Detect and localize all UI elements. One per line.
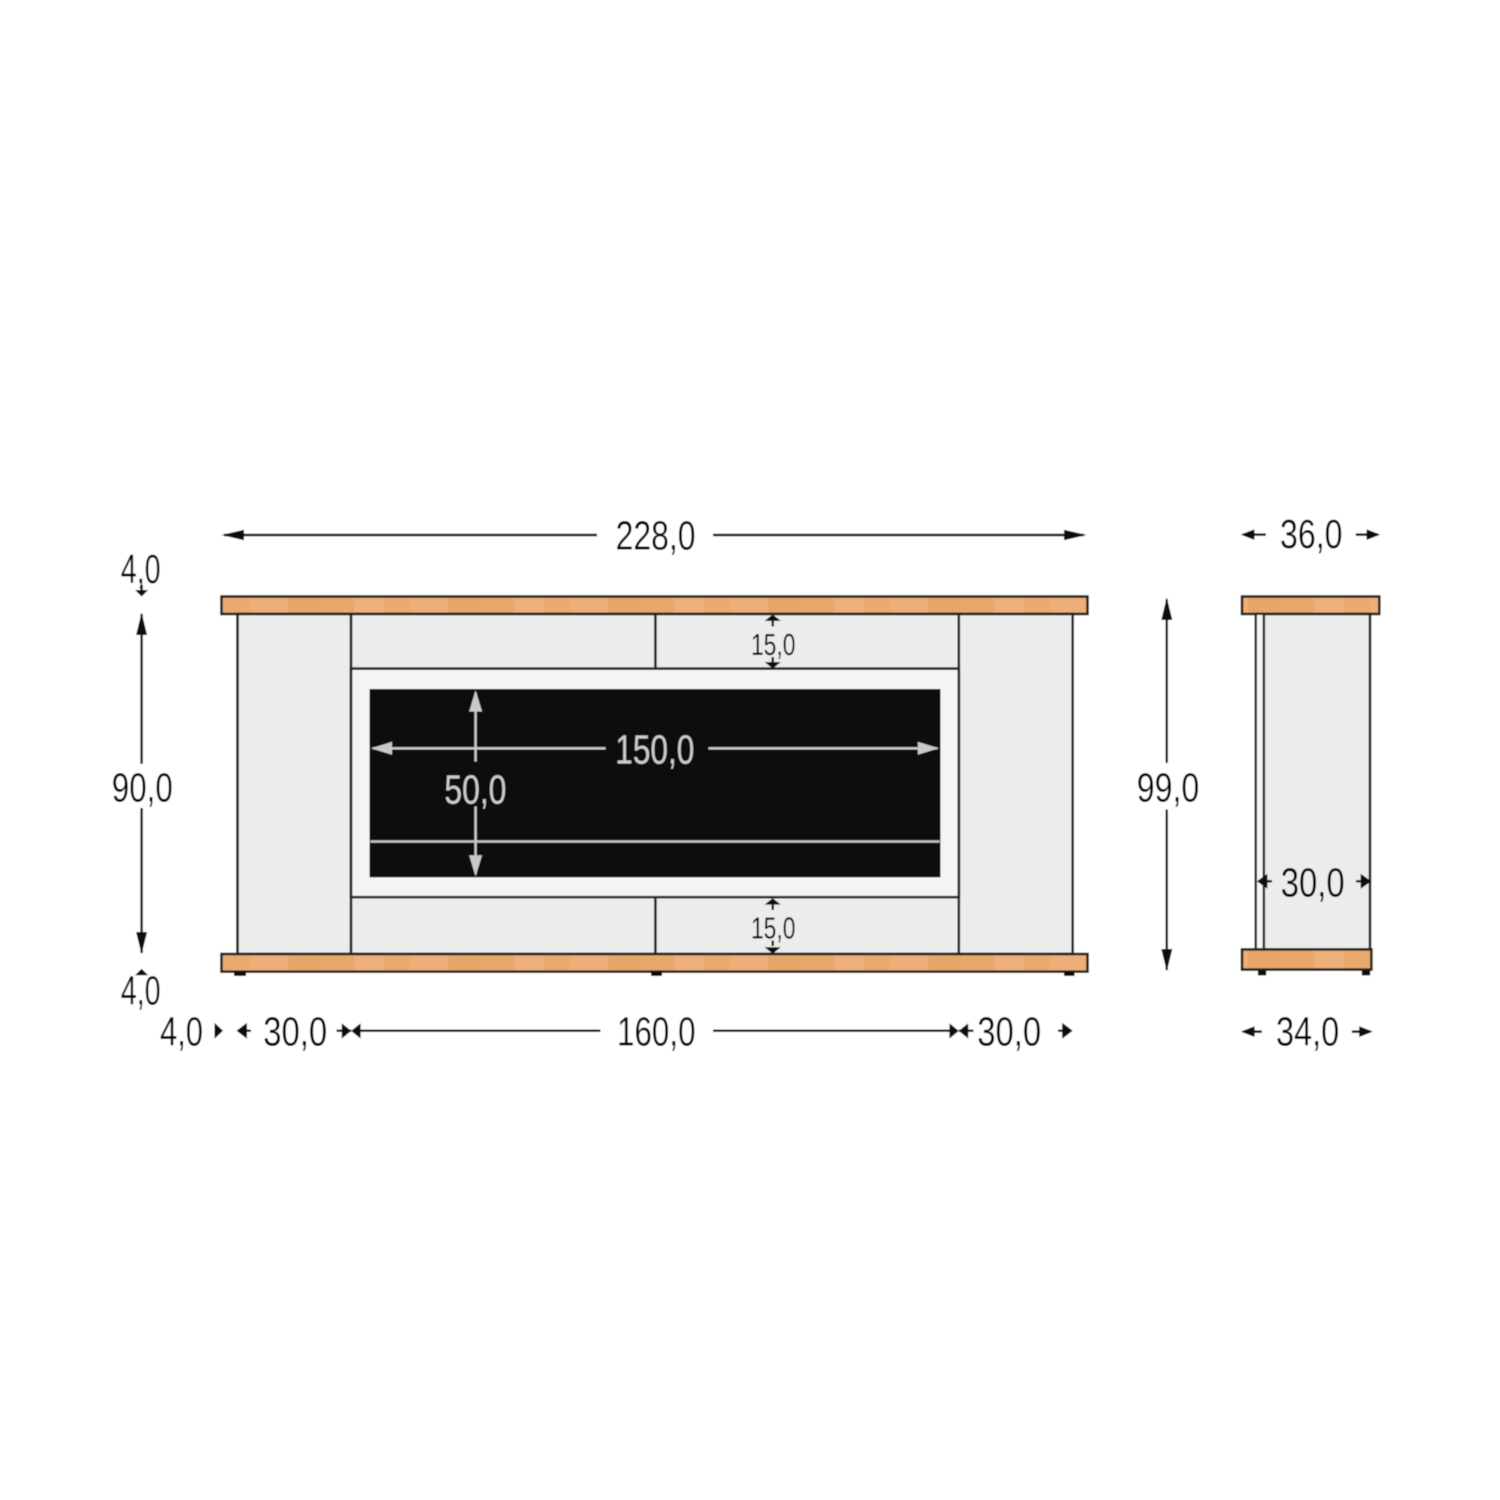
svg-text:15,0: 15,0 bbox=[751, 910, 796, 945]
svg-text:160,0: 160,0 bbox=[617, 1009, 696, 1055]
svg-text:150,0: 150,0 bbox=[615, 726, 694, 772]
svg-text:90,0: 90,0 bbox=[112, 764, 173, 810]
svg-text:99,0: 99,0 bbox=[1137, 764, 1200, 810]
svg-text:228,0: 228,0 bbox=[616, 513, 696, 559]
svg-text:30,0: 30,0 bbox=[977, 1009, 1041, 1055]
svg-text:4,0: 4,0 bbox=[160, 1009, 203, 1055]
svg-text:30,0: 30,0 bbox=[263, 1009, 327, 1055]
svg-text:4,0: 4,0 bbox=[121, 968, 161, 1014]
svg-text:15,0: 15,0 bbox=[751, 627, 796, 662]
svg-text:30,0: 30,0 bbox=[1281, 859, 1345, 905]
svg-text:36,0: 36,0 bbox=[1280, 511, 1343, 557]
svg-text:34,0: 34,0 bbox=[1276, 1008, 1339, 1054]
svg-text:50,0: 50,0 bbox=[444, 767, 506, 813]
